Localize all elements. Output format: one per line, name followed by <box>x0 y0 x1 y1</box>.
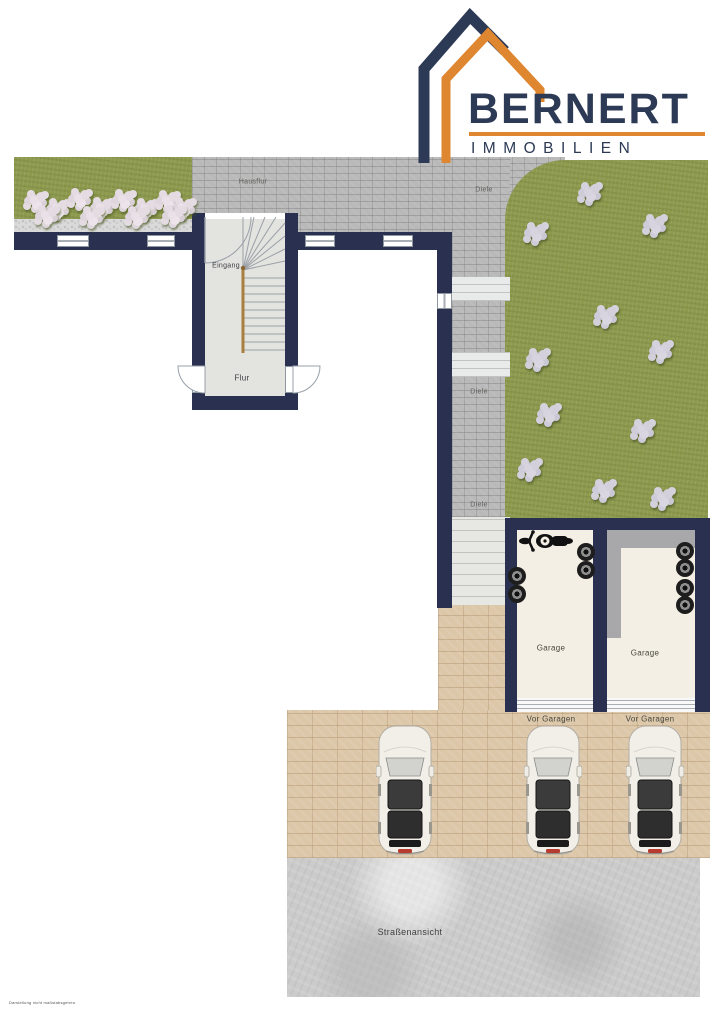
flower-bush <box>118 195 126 203</box>
motorcycle-icon <box>518 528 576 554</box>
tire-stack-icon <box>676 596 694 614</box>
tire-stack-icon <box>577 561 595 579</box>
car-top-view <box>376 722 434 858</box>
site-plan-page: BERNERT IMMOBILIEN Hausflur Eingang Flur… <box>0 0 724 1024</box>
car-top-view <box>524 722 582 858</box>
flur-label: Flur <box>235 374 250 383</box>
flower-bush <box>41 211 49 219</box>
tire-stack-icon <box>676 559 694 577</box>
flower-bush <box>168 211 176 219</box>
flower-bush <box>178 203 186 211</box>
window-1 <box>57 235 89 247</box>
lawn-bush <box>657 493 665 501</box>
diele-label: Diele <box>470 389 487 396</box>
lawn-bush <box>649 220 657 228</box>
flower-bush <box>52 204 60 212</box>
lawn-bush <box>543 409 551 417</box>
logo-rule <box>469 132 705 136</box>
garage-2-gray-column <box>607 528 621 638</box>
strassenansicht-label: Straßenansicht <box>378 927 443 937</box>
lawn-bush <box>655 346 663 354</box>
street-area <box>287 858 700 997</box>
eingang-label: Eingang <box>212 263 240 270</box>
lawn-bush <box>524 464 532 472</box>
garage-wall-right <box>695 518 710 712</box>
flower-bush <box>162 196 170 204</box>
lawn-bush <box>532 354 540 362</box>
lawn-bush <box>584 188 592 196</box>
stairs-drawing <box>155 205 345 420</box>
tire-stack-icon <box>508 585 526 603</box>
garage-wall-middle <box>593 518 607 712</box>
lawn-bush <box>600 311 608 319</box>
flower-bush <box>96 203 104 211</box>
diele-label: Diele <box>470 502 487 509</box>
lawn-bush <box>598 485 606 493</box>
outdoor-stairs <box>452 517 510 608</box>
garage-1-label: Garage <box>537 644 565 653</box>
tire-stack-icon <box>676 579 694 597</box>
flower-bush <box>86 212 94 220</box>
garage-2-door <box>607 698 695 712</box>
lawn-bush <box>637 425 645 433</box>
logo-subtitle-text: IMMOBILIEN <box>471 140 707 158</box>
lawn <box>505 160 708 518</box>
path-to-parking <box>438 605 505 712</box>
garage-2-label: Garage <box>631 649 659 658</box>
tire-stack-icon <box>577 543 595 561</box>
logo-brand-text: BERNERT <box>468 88 708 131</box>
hausflur-label: Hausflur <box>239 179 267 186</box>
garage-1-door <box>517 698 593 712</box>
exterior-wall-east <box>437 232 452 608</box>
tire-stack-icon <box>508 567 526 585</box>
flower-bush <box>131 212 139 220</box>
flower-bush <box>74 194 82 202</box>
flower-bush <box>30 196 38 204</box>
window-east-wall <box>437 293 452 309</box>
tire-stack-icon <box>676 542 694 560</box>
lawn-bush <box>530 228 538 236</box>
flower-bush <box>140 204 148 212</box>
garage-wall-left <box>505 518 517 712</box>
car-top-view <box>626 722 684 858</box>
plan-disclaimer: Darstellung nicht maßstabsgetreu <box>9 1000 75 1005</box>
path-steps-upper <box>452 277 510 301</box>
window-4 <box>383 235 413 247</box>
path-steps-mid <box>452 352 510 377</box>
diele-label: Diele <box>475 187 492 194</box>
